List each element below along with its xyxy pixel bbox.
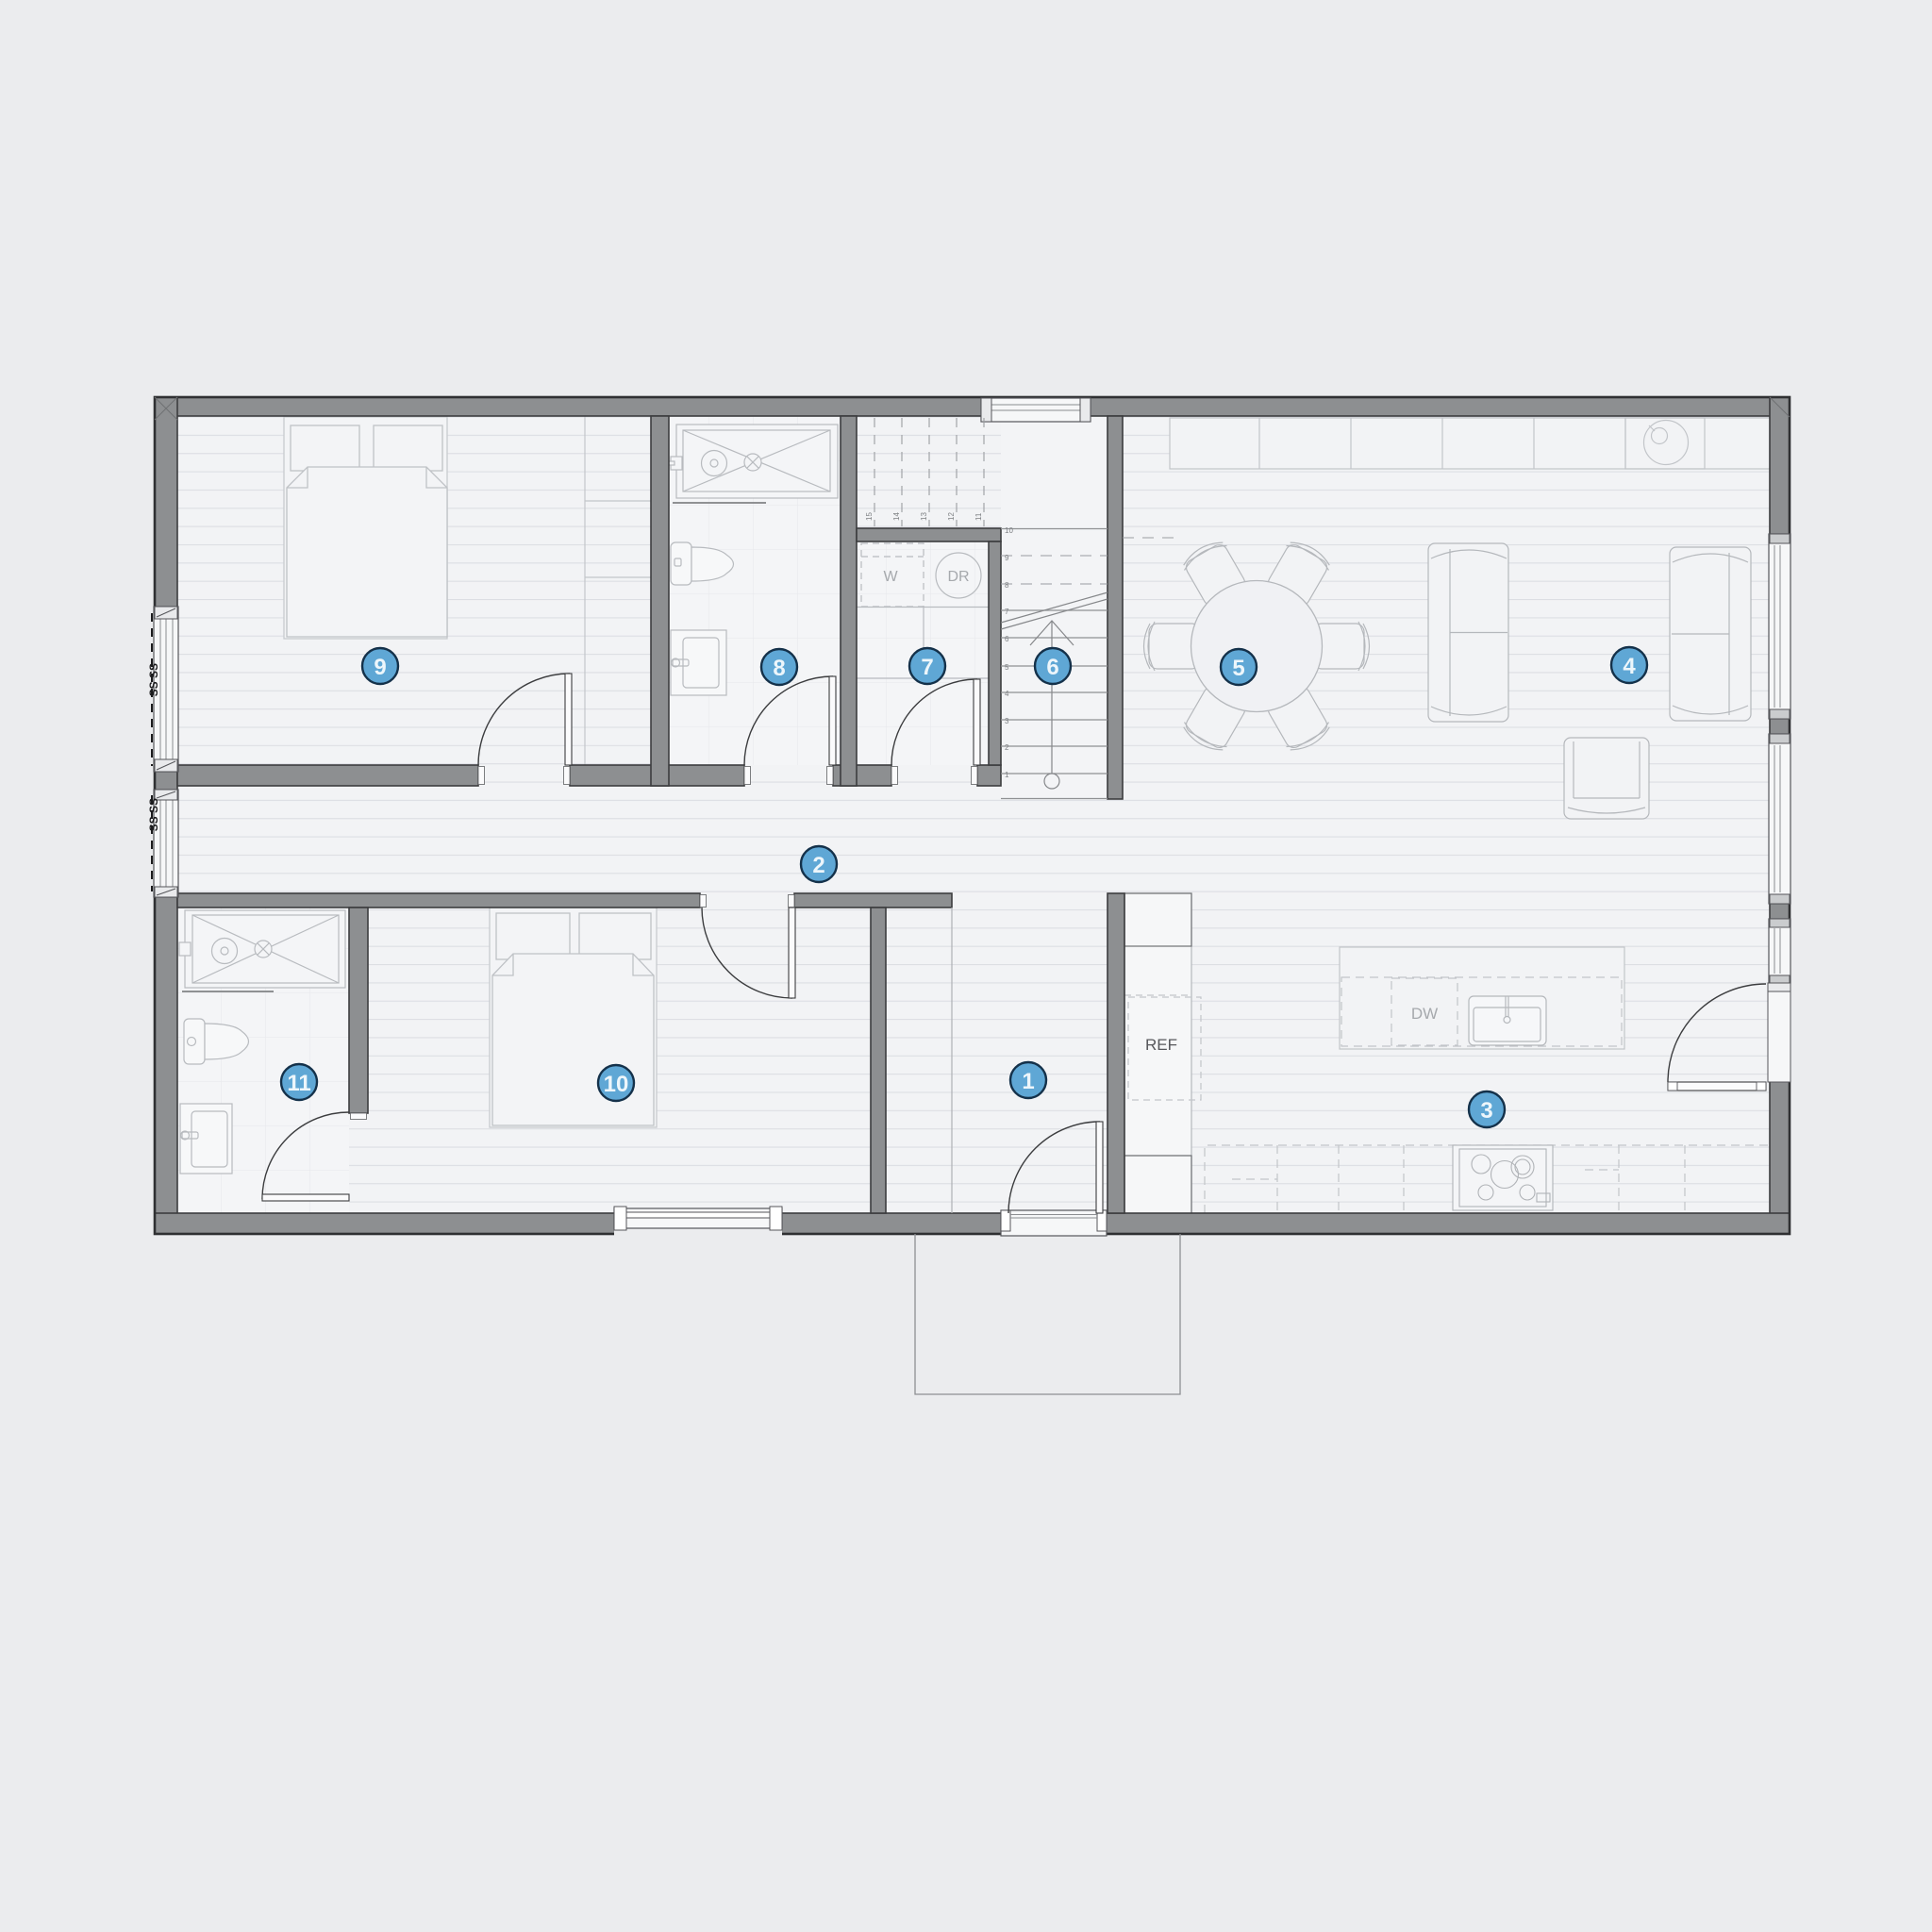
svg-text:11: 11 <box>287 1071 310 1096</box>
svg-text:4: 4 <box>1623 654 1636 679</box>
svg-text:REF: REF <box>1145 1036 1177 1054</box>
svg-text:DW: DW <box>1411 1005 1438 1023</box>
svg-text:6: 6 <box>1046 655 1058 680</box>
svg-text:2: 2 <box>1005 743 1009 752</box>
svg-text:11: 11 <box>974 512 983 521</box>
svg-text:14: 14 <box>892 512 901 521</box>
svg-text:5: 5 <box>1005 663 1009 672</box>
svg-text:5: 5 <box>1232 656 1244 681</box>
svg-text:9: 9 <box>1005 554 1009 562</box>
svg-text:1: 1 <box>1005 771 1009 779</box>
svg-text:4: 4 <box>1005 690 1009 698</box>
svg-text:3: 3 <box>1005 717 1009 725</box>
svg-text:3: 3 <box>1480 1098 1492 1124</box>
svg-text:10: 10 <box>1005 526 1013 535</box>
svg-text:1: 1 <box>1022 1069 1034 1094</box>
svg-text:W: W <box>883 569 898 585</box>
svg-text:8: 8 <box>773 656 785 681</box>
svg-text:7: 7 <box>921 655 933 680</box>
svg-text:SS SS: SS SS <box>147 663 160 696</box>
svg-text:8: 8 <box>1005 581 1009 590</box>
svg-text:2: 2 <box>812 853 824 878</box>
svg-text:6: 6 <box>1005 635 1009 643</box>
svg-text:7: 7 <box>1005 608 1009 616</box>
svg-text:9: 9 <box>374 655 386 680</box>
svg-text:13: 13 <box>920 512 928 521</box>
svg-text:10: 10 <box>604 1072 629 1097</box>
svg-text:12: 12 <box>947 512 956 521</box>
svg-text:15: 15 <box>865 512 874 521</box>
svg-text:SS SS: SS SS <box>147 798 160 831</box>
svg-text:DR: DR <box>947 569 969 585</box>
